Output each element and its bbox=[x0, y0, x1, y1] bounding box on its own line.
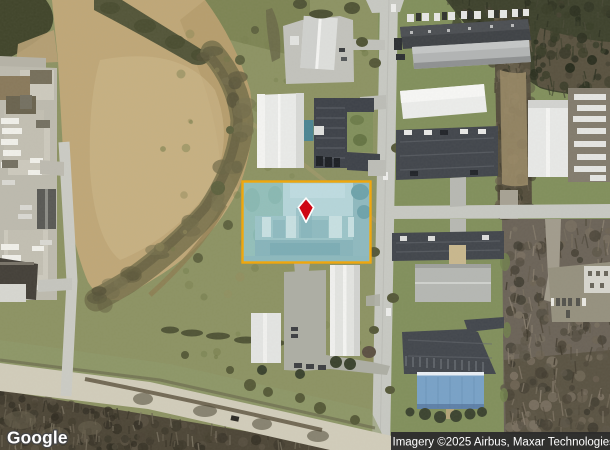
svg-text:Google: Google bbox=[7, 428, 68, 448]
svg-text:Imagery ©2025 Airbus, Maxar Te: Imagery ©2025 Airbus, Maxar Technologies bbox=[393, 437, 610, 449]
